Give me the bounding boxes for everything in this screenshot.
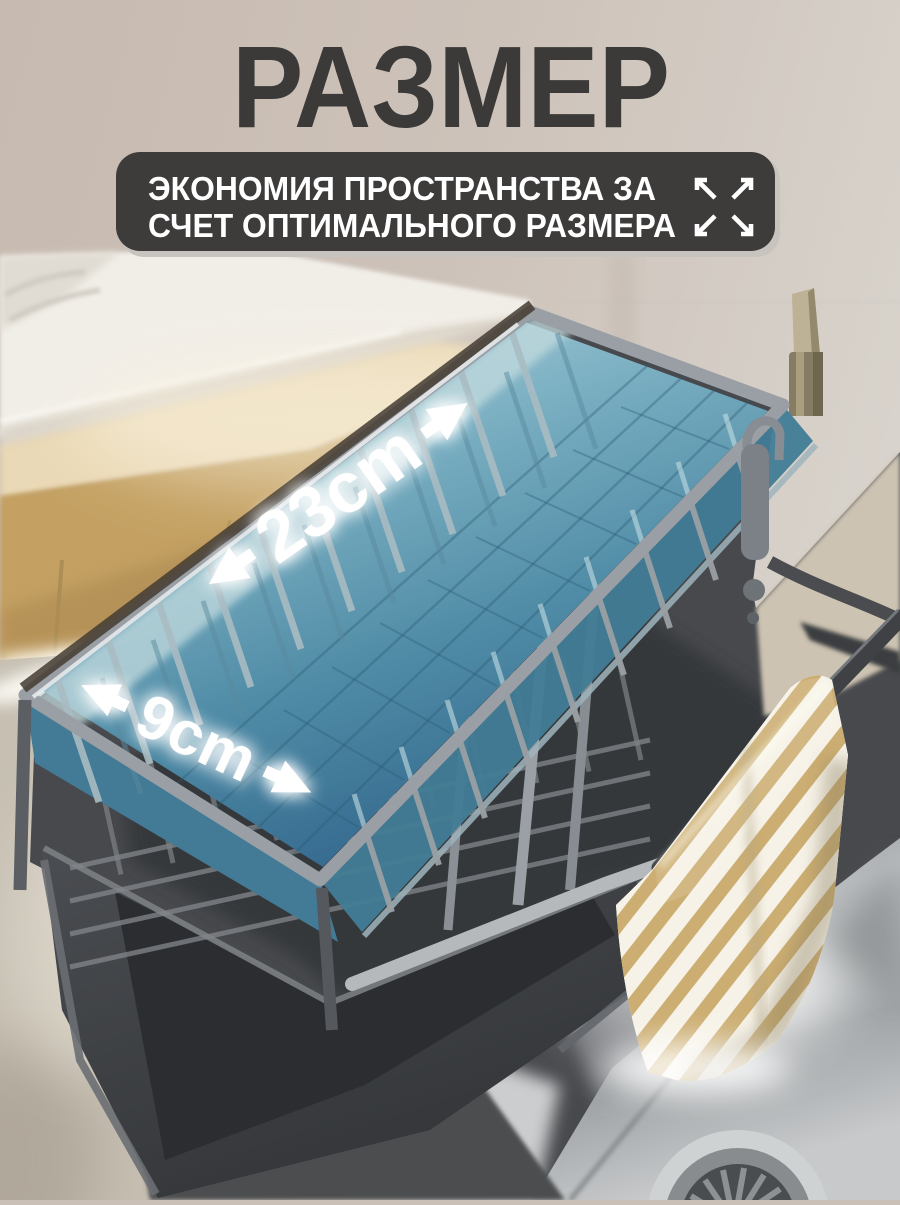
svg-text:РАЗМЕР: РАЗМЕР (232, 22, 670, 152)
svg-text:СЧЕТ ОПТИМАЛЬНОГО РАЗМЕРА: СЧЕТ ОПТИМАЛЬНОГО РАЗМЕРА (148, 207, 676, 244)
svg-text:ЭКОНОМИЯ ПРОСТРАНСТВА ЗА: ЭКОНОМИЯ ПРОСТРАНСТВА ЗА (148, 170, 656, 207)
